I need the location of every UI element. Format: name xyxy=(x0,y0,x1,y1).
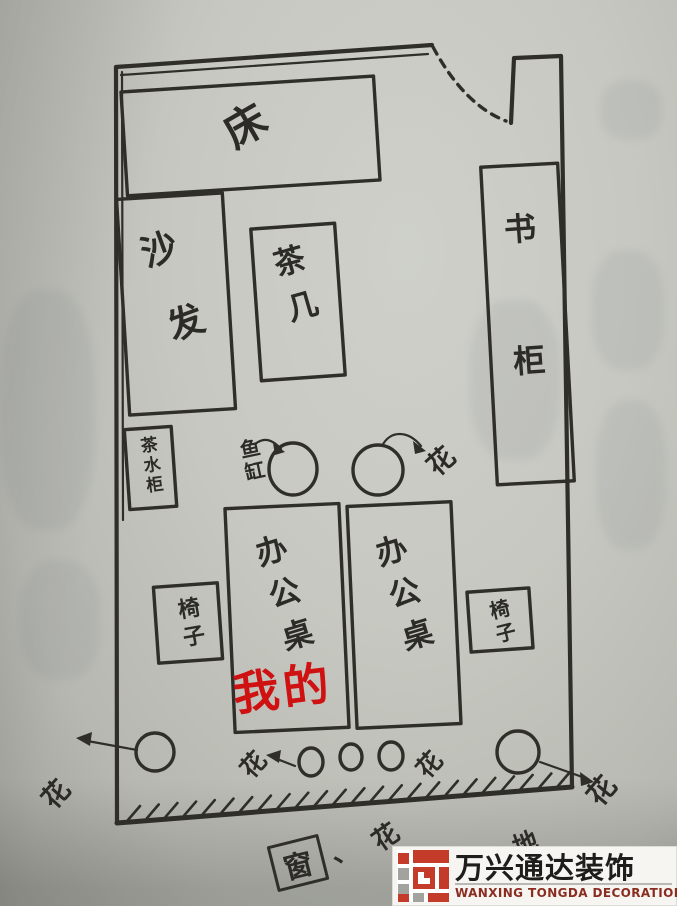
floorplan-drawing: 床 沙发 茶几 茶水柜 书柜 鱼缸 花 办公桌 办公桌 我的 椅子 椅子 花 花… xyxy=(0,0,677,906)
chair-left-label: 椅子 xyxy=(172,595,207,655)
flower-row-arrowhead xyxy=(266,750,281,763)
sofa-label: 沙发 xyxy=(130,225,223,386)
window-hatch-tick xyxy=(184,802,196,816)
watermark-text: 万兴通达装饰 WANXING TONGDA DECORATION xyxy=(455,853,672,900)
window-hatching xyxy=(128,772,570,820)
watermark: 万兴通达装饰 WANXING TONGDA DECORATION xyxy=(392,846,677,906)
window-label-comma: 、 xyxy=(328,835,361,870)
flower-bottom-left-arrowhead xyxy=(76,732,92,746)
flower-label-row-left: 花 xyxy=(234,746,272,784)
window-hatch-tick xyxy=(521,775,533,789)
window-hatch-tick xyxy=(352,788,364,802)
window-hatch-tick xyxy=(465,779,477,793)
window-hatch-tick xyxy=(334,790,346,804)
floorplan-photo: 床 沙发 茶几 茶水柜 书柜 鱼缸 花 办公桌 办公桌 我的 椅子 椅子 花 花… xyxy=(0,0,677,906)
flower-pot-circle-row-3 xyxy=(379,742,403,770)
flower-pot-circle-row-2 xyxy=(340,744,362,770)
flower-pot-circle-middle xyxy=(353,445,403,495)
wanxing-tongda-logo-icon xyxy=(397,850,449,902)
window-hatch-tick xyxy=(483,778,495,792)
tea-table-label: 茶几 xyxy=(264,241,325,341)
watermark-brand-en: WANXING TONGDA DECORATION xyxy=(455,883,672,900)
flower-label-bottom-left: 花 xyxy=(36,774,77,815)
door-swing-arc xyxy=(433,47,506,121)
window-hatch-tick xyxy=(427,782,439,796)
bed-label: 床 xyxy=(215,94,276,157)
left-wall xyxy=(116,67,117,823)
bookcase-label: 书柜 xyxy=(498,211,554,477)
my-desk-tag: 我的 xyxy=(230,656,336,722)
window-hatch-tick xyxy=(558,772,570,786)
window-hatch-tick xyxy=(408,784,420,798)
top-wall-right-segment xyxy=(515,56,561,58)
flower-pot-circle-bottom-left xyxy=(136,733,174,771)
window-hatch-tick xyxy=(371,787,383,801)
flower-label-middle: 花 xyxy=(421,441,462,482)
window-hatch-tick xyxy=(446,781,458,795)
fish-tank-label: 鱼缸 xyxy=(234,435,267,486)
tea-cabinet-label: 茶水柜 xyxy=(135,434,164,497)
window-hatch-tick xyxy=(315,791,327,805)
room-walls xyxy=(116,45,572,823)
window-hatch-tick xyxy=(203,800,215,814)
window-hatch-tick xyxy=(128,806,140,820)
window-hatch-tick xyxy=(221,799,233,813)
window-hatch-tick xyxy=(390,785,402,799)
window-hatch-tick xyxy=(278,794,290,808)
window-hatch-tick xyxy=(259,796,271,810)
window-hatch-tick xyxy=(240,797,252,811)
flower-pot-circle-row-1 xyxy=(299,748,323,776)
chair-right-label: 椅子 xyxy=(484,595,519,649)
door-jamb xyxy=(511,58,514,123)
flower-label-bottom-right: 花 xyxy=(580,769,623,812)
flower-pot-circle-bottom-right xyxy=(497,731,539,773)
desk-other-label: 办公桌 xyxy=(366,531,439,668)
window-label: 窗 xyxy=(280,846,316,886)
window-hatch-tick xyxy=(502,776,514,790)
window-hatch-tick xyxy=(539,773,551,787)
desk-mine-label: 办公桌 xyxy=(246,531,319,668)
window-hatch-tick xyxy=(147,805,159,819)
window-hatch-tick xyxy=(296,793,308,807)
window-hatch-tick xyxy=(165,803,177,817)
flower-label-row-right: 花 xyxy=(410,746,448,784)
watermark-brand-cn: 万兴通达装饰 xyxy=(455,853,672,883)
